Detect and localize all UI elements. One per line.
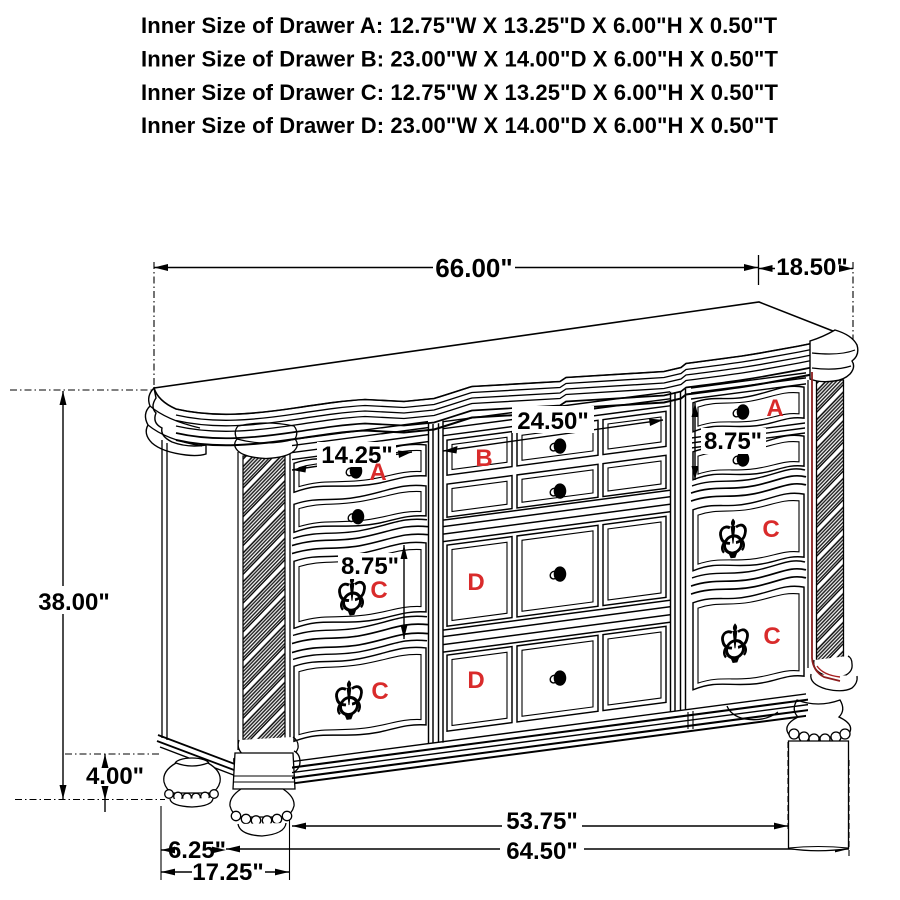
svg-text:Inner Size of Drawer C: 12.75": Inner Size of Drawer C: 12.75"W X 13.25"…: [141, 80, 778, 105]
svg-text:A: A: [369, 459, 386, 486]
svg-text:D: D: [467, 667, 484, 694]
svg-text:66.00": 66.00": [435, 253, 512, 283]
svg-text:D: D: [467, 569, 484, 596]
svg-text:Inner Size of Drawer D: 23.00": Inner Size of Drawer D: 23.00"W X 14.00"…: [141, 113, 778, 138]
svg-text:C: C: [370, 577, 387, 604]
svg-text:8.75": 8.75": [341, 553, 399, 580]
svg-text:C: C: [763, 623, 780, 650]
svg-text:38.00": 38.00": [38, 589, 109, 616]
svg-text:17.25": 17.25": [192, 859, 263, 886]
svg-text:Inner Size of Drawer A: 12.75": Inner Size of Drawer A: 12.75"W X 13.25"…: [141, 13, 778, 38]
svg-text:C: C: [762, 516, 779, 543]
svg-text:53.75": 53.75": [506, 808, 577, 835]
svg-text:Inner Size of Drawer B: 23.00": Inner Size of Drawer B: 23.00"W X 14.00"…: [141, 47, 778, 72]
svg-text:A: A: [766, 395, 783, 422]
svg-text:8.75": 8.75": [704, 428, 762, 455]
svg-text:24.50": 24.50": [517, 408, 588, 435]
svg-text:64.50": 64.50": [506, 838, 577, 865]
svg-text:C: C: [371, 678, 388, 705]
svg-text:4.00": 4.00": [86, 763, 144, 790]
svg-text:B: B: [475, 445, 492, 472]
svg-text:18.50": 18.50": [776, 254, 847, 281]
